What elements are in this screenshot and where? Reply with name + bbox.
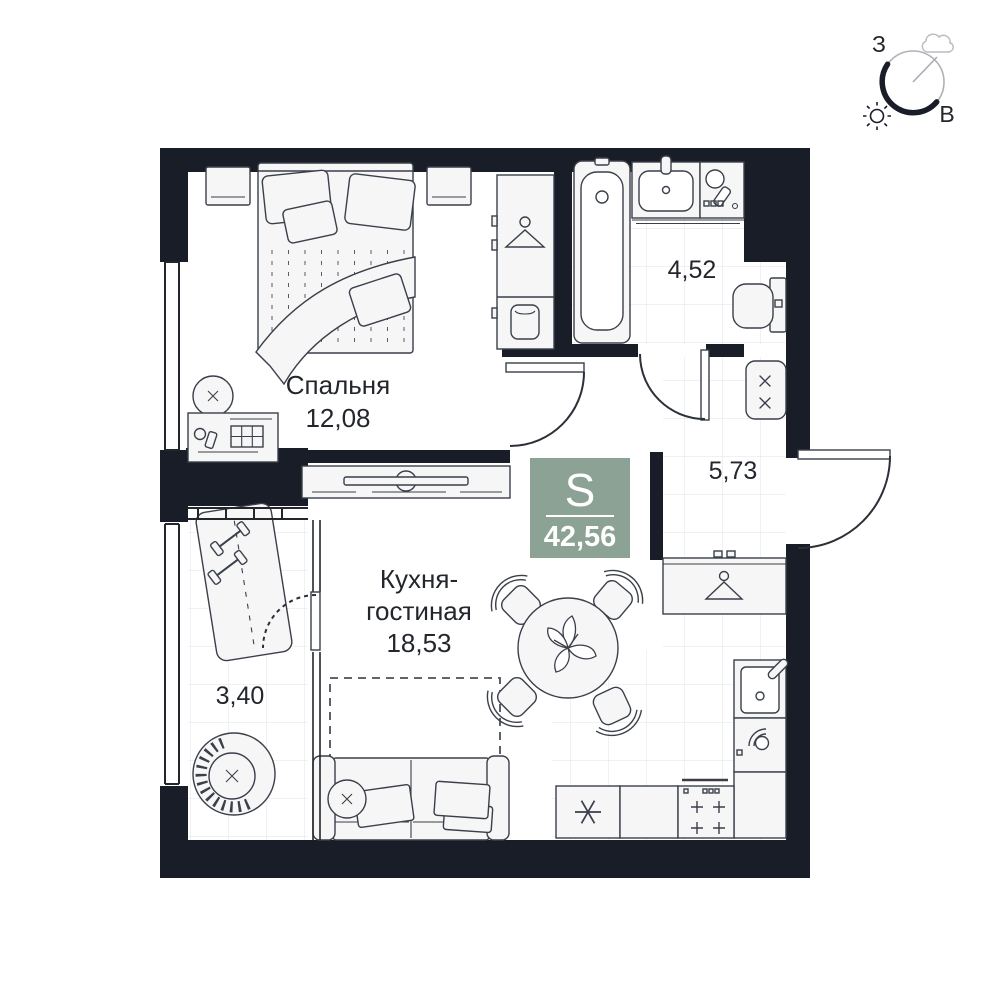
laundry-basket-icon: [511, 305, 539, 339]
nightstand-left: [206, 167, 250, 205]
sink-faucet: [661, 156, 671, 174]
wall-bathroom-left: [554, 172, 572, 354]
floor-plan: Спальня 12,08 Кухня- гостиная 18,53 4,52…: [0, 0, 1000, 1000]
wall-hall-divider: [650, 452, 663, 560]
tv-stand: [302, 466, 510, 498]
corner-cabinet: [734, 772, 786, 838]
round-pillow: [328, 780, 366, 818]
sofa: [313, 756, 509, 840]
tv: [344, 477, 468, 485]
kitchen-living-area: 18,53: [386, 628, 451, 658]
hallway-wardrobe: [663, 551, 786, 614]
pillow: [344, 173, 416, 231]
pillow: [434, 781, 490, 819]
bathtub: [574, 158, 630, 343]
kitchen-living-label-line1: Кухня-: [380, 564, 458, 594]
nightstand-right: [427, 167, 471, 205]
wall-left-top: [160, 148, 188, 262]
wall-bathroom-bottom-b: [706, 344, 744, 357]
toilet: [733, 278, 786, 332]
compass-arc: [882, 64, 937, 112]
wardrobe-handle: [727, 551, 735, 557]
bedroom-wardrobe: [492, 175, 554, 349]
bedroom-area: 12,08: [305, 403, 370, 433]
counter-cabinet: [620, 786, 678, 838]
bath-faucet: [595, 158, 609, 165]
bed: [256, 163, 416, 384]
bathroom-area: 4,52: [668, 256, 717, 284]
loggia-window: [165, 524, 179, 784]
bedroom-window: [165, 262, 179, 450]
toilet-bowl: [733, 284, 773, 328]
wall-bottom: [160, 840, 810, 878]
kitchen-living-label-line2: гостиная: [366, 596, 472, 626]
floor-plan-page: Спальня 12,08 Кухня- гостиная 18,53 4,52…: [0, 0, 1000, 1000]
wall-right-bottom: [786, 544, 810, 878]
stove: [678, 780, 734, 838]
wall-bathroom-corner-block: [744, 148, 786, 262]
wardrobe-handle: [492, 216, 497, 226]
loggia-area: 3,40: [216, 682, 265, 710]
entrance-door: [798, 450, 890, 548]
compass-east-label: В: [939, 101, 954, 127]
cloud-icon: [922, 34, 953, 52]
total-area-badge: S 42,56: [530, 458, 630, 558]
wardrobe-handle: [714, 551, 722, 557]
papasan-chair: [193, 733, 275, 815]
bedroom-label: Спальня: [286, 370, 390, 400]
sun-icon: [863, 102, 891, 130]
wardrobe-handle: [492, 308, 497, 318]
kitchen-sink-cabinet: [734, 658, 789, 718]
dishwasher: [734, 718, 786, 772]
vanity-desk: [188, 413, 278, 462]
badge-letter: S: [565, 464, 596, 516]
wall-bedroom-south: [298, 450, 510, 463]
wardrobe-handle: [492, 240, 497, 250]
hairdryer-counter: [700, 162, 744, 218]
wall-left-mid: [160, 450, 188, 522]
compass-needle: [913, 57, 937, 82]
wall-right-top: [786, 148, 810, 458]
washer: [746, 361, 786, 419]
hallway-area: 5,73: [709, 457, 758, 485]
desk-chair: [193, 376, 233, 416]
badge-value: 42,56: [544, 521, 617, 553]
compass: З В: [863, 31, 955, 130]
bathroom-sink: [632, 156, 700, 218]
compass-west-label: З: [872, 31, 886, 57]
fridge: [556, 786, 620, 838]
